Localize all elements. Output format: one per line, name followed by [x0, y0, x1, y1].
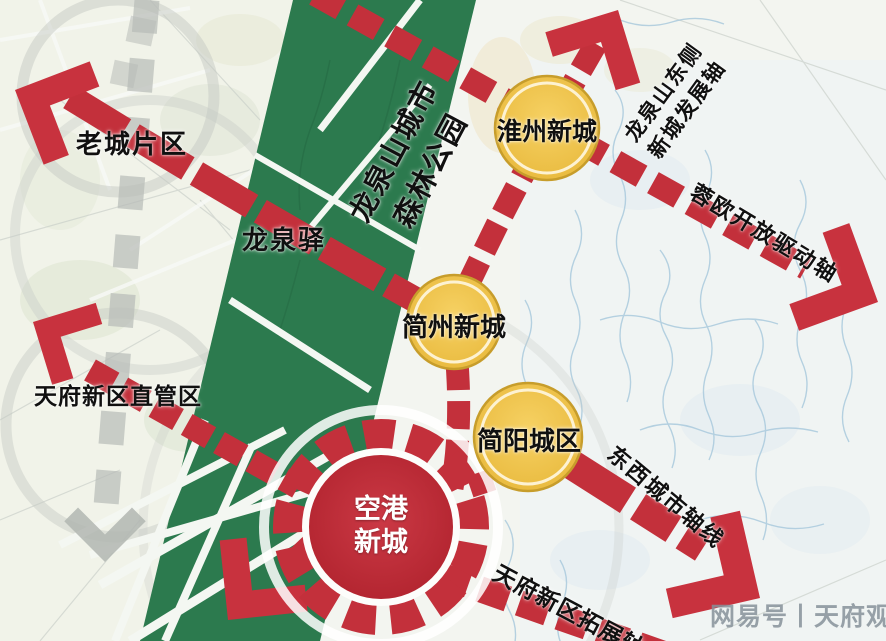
watermark: 网易号丨天府观察 [710, 597, 886, 633]
konggang-label: 空港 新城 [331, 494, 431, 560]
tianfu-direct-label: 天府新区直管区 [34, 377, 202, 411]
old-city-label: 老城片区 [76, 124, 188, 161]
longquanyi-label: 龙泉驿 [242, 220, 326, 257]
jianzhou-label: 简州新城 [400, 307, 508, 344]
konggang-label-line1: 空港 [331, 494, 431, 527]
huaizhou-label: 淮州新城 [495, 112, 599, 148]
planning-map: 老城片区 龙泉驿 天府新区直管区 龙泉山城市 森林公园 龙泉山东侧 新城发展轴 … [0, 0, 886, 641]
jianyang-label: 简阳城区 [474, 421, 584, 458]
konggang-label-line2: 新城 [331, 527, 431, 560]
